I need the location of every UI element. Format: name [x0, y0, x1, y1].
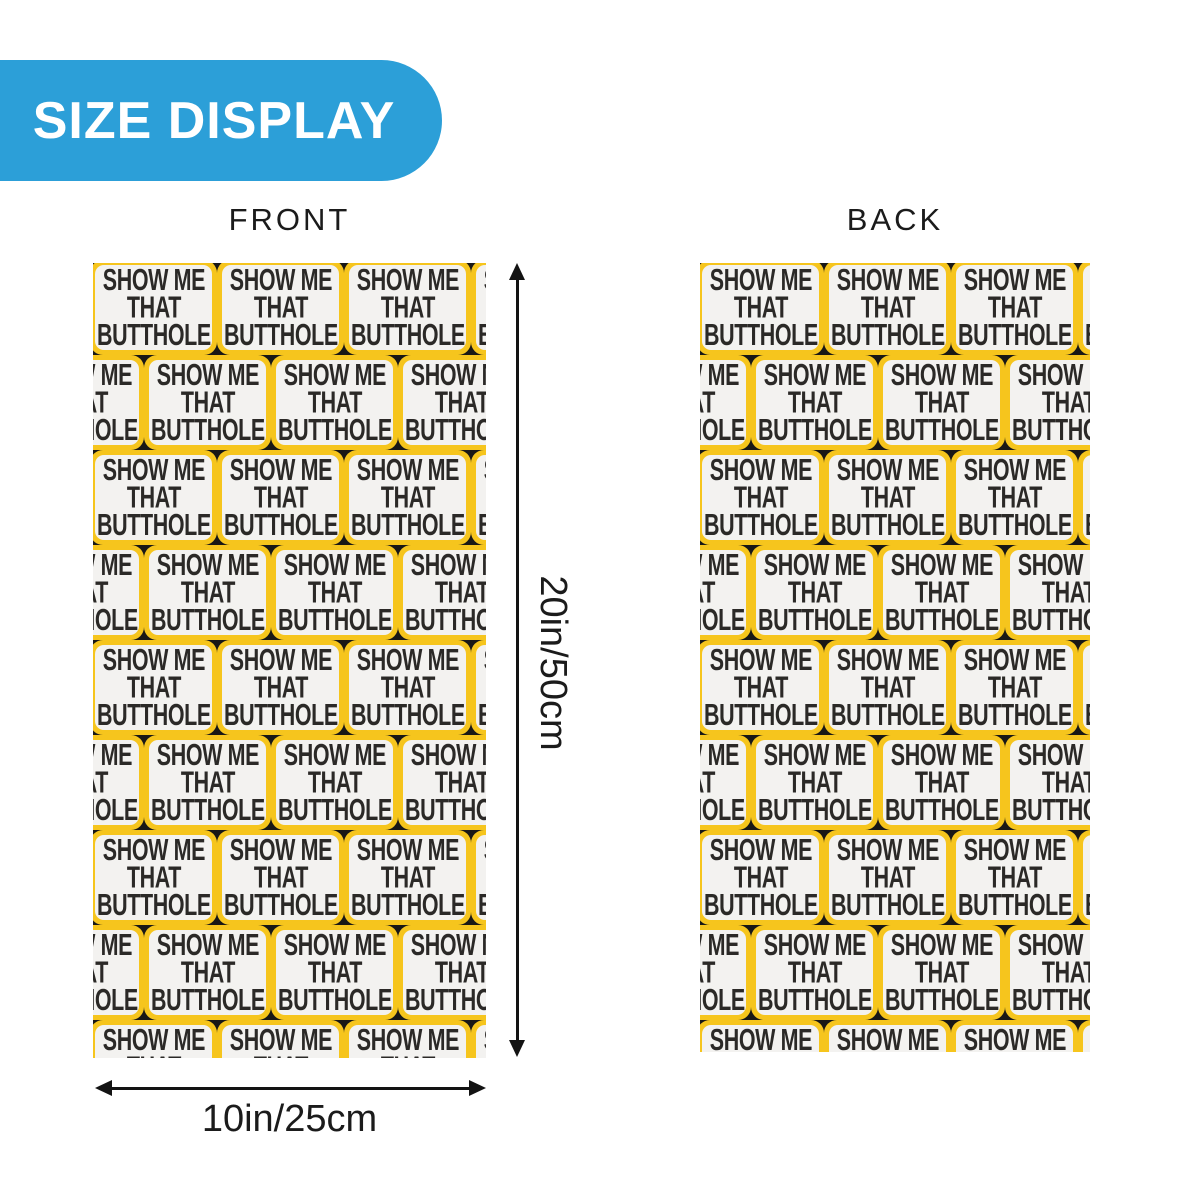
- pattern-tile-face: SHOW METHATBUTTHOLE: [1083, 1025, 1090, 1052]
- tile-text: SHOW METHATBUTTHOLE: [351, 646, 465, 729]
- pattern-tile-face: SHOW METHATBUTTHOLE: [476, 455, 486, 540]
- size-display-page: SIZE DISPLAY FRONT BACK SHOW METHATBUTTH…: [0, 0, 1200, 1200]
- tile-line: BUTTHOLE: [958, 891, 1072, 919]
- tile-line: BUTTHOLE: [351, 891, 465, 919]
- tile-line: THAT: [1012, 579, 1090, 607]
- pattern-tile-face: SHOW METHATBUTTHOLE: [149, 930, 266, 1015]
- pattern-tile: SHOW METHATBUTTHOLE: [878, 925, 1005, 1020]
- tile-line: SHOW ME: [405, 551, 486, 579]
- pattern-tile-face: SHOW METHATBUTTHOLE: [222, 645, 339, 730]
- tile-line: THAT: [758, 389, 872, 417]
- height-arrow: [509, 263, 526, 1057]
- tile-text: SHOW METHATBUTTHOLE: [478, 646, 486, 729]
- tile-text: SHOW METHATBUTTHOLE: [958, 836, 1072, 919]
- tile-line: BUTTHOLE: [97, 891, 211, 919]
- tile-line: THAT: [151, 389, 265, 417]
- pattern-tile-face: SHOW METHATBUTTHOLE: [93, 550, 139, 635]
- pattern-tile-face: SHOW METHATBUTTHOLE: [1083, 265, 1090, 350]
- pattern-tile: SHOW METHATBUTTHOLE: [93, 450, 217, 545]
- tile-text: SHOW METHATBUTTHOLE: [93, 551, 137, 634]
- tile-line: BUTTHOLE: [758, 606, 872, 634]
- tile-line: SHOW ME: [831, 1026, 945, 1052]
- pattern-tile-face: SHOW METHATBUTTHOLE: [756, 550, 873, 635]
- pattern-tile-face: SHOW METHATBUTTHOLE: [829, 1025, 946, 1052]
- tile-line: SHOW ME: [224, 646, 338, 674]
- tile-text: SHOW METHATBUTTHOLE: [1012, 741, 1090, 824]
- tile-line: BUTTHOLE: [93, 416, 137, 444]
- tile-line: BUTTHOLE: [885, 986, 999, 1014]
- tile-line: SHOW ME: [758, 931, 872, 959]
- tile-line: BUTTHOLE: [224, 701, 338, 729]
- tile-text: SHOW METHATBUTTHOLE: [758, 361, 872, 444]
- pattern-tile-face: SHOW METHATBUTTHOLE: [1010, 360, 1090, 445]
- tile-line: THAT: [405, 579, 486, 607]
- pattern-tile: SHOW METHATBUTTHOLE: [271, 545, 398, 640]
- tile-line: THAT: [93, 579, 137, 607]
- tile-line: BUTTHOLE: [704, 701, 818, 729]
- pattern-tile-face: SHOW METHATBUTTHOLE: [222, 455, 339, 540]
- tile-line: SHOW ME: [704, 266, 818, 294]
- tile-text: SHOW METHATBUTTHOLE: [958, 266, 1072, 349]
- pattern-tile-face: SHOW METHATBUTTHOLE: [93, 360, 139, 445]
- tile-line: THAT: [704, 484, 818, 512]
- tile-line: SHOW ME: [278, 931, 392, 959]
- pattern-tile: SHOW METHATBUTTHOLE: [93, 545, 144, 640]
- pattern-tile-face: SHOW METHATBUTTHOLE: [476, 265, 486, 350]
- tile-line: BUTTHOLE: [278, 986, 392, 1014]
- pattern-tile-face: SHOW METHATBUTTHOLE: [829, 835, 946, 920]
- tile-line: SHOW ME: [1085, 266, 1090, 294]
- pattern-tile-face: SHOW METHATBUTTHOLE: [349, 835, 466, 920]
- pattern-tile: SHOW METHATBUTTHOLE: [700, 830, 824, 925]
- tile-text: SHOW METHATBUTTHOLE: [704, 646, 818, 729]
- pattern-tile-face: SHOW METHATBUTTHOLE: [403, 360, 486, 445]
- arrowhead-down-icon: [509, 1040, 525, 1057]
- pattern-tile-face: SHOW METHATBUTTHOLE: [149, 550, 266, 635]
- tile-text: SHOW METHATBUTTHOLE: [831, 1026, 945, 1052]
- tile-text: SHOW METHATBUTTHOLE: [1012, 931, 1090, 1014]
- pattern-tile-face: SHOW METHATBUTTHOLE: [829, 455, 946, 540]
- tile-line: BUTTHOLE: [278, 796, 392, 824]
- tile-line: SHOW ME: [405, 741, 486, 769]
- tile-text: SHOW METHATBUTTHOLE: [1085, 836, 1090, 919]
- pattern-tile-face: SHOW METHATBUTTHOLE: [829, 645, 946, 730]
- tile-line: SHOW ME: [958, 456, 1072, 484]
- tile-line: SHOW ME: [405, 931, 486, 959]
- tile-text: SHOW METHATBUTTHOLE: [97, 1026, 211, 1058]
- tile-line: BUTTHOLE: [1085, 321, 1090, 349]
- pattern-tile: SHOW METHATBUTTHOLE: [93, 925, 144, 1020]
- tile-line: BUTTHOLE: [97, 701, 211, 729]
- tile-line: SHOW ME: [151, 741, 265, 769]
- pattern-tile-face: SHOW METHATBUTTHOLE: [276, 930, 393, 1015]
- pattern-tile: SHOW METHATBUTTHOLE: [93, 735, 144, 830]
- tile-line: SHOW ME: [93, 741, 137, 769]
- tile-line: SHOW ME: [97, 1026, 211, 1054]
- tile-text: SHOW METHATBUTTHOLE: [405, 931, 486, 1014]
- tile-line: BUTTHOLE: [351, 511, 465, 539]
- tile-text: SHOW METHATBUTTHOLE: [351, 836, 465, 919]
- tile-line: THAT: [93, 959, 137, 987]
- pattern-tile-face: SHOW METHATBUTTHOLE: [222, 265, 339, 350]
- tile-line: THAT: [151, 959, 265, 987]
- tile-line: BUTTHOLE: [151, 986, 265, 1014]
- tile-line: SHOW ME: [351, 266, 465, 294]
- pattern-tile-face: SHOW METHATBUTTHOLE: [702, 835, 819, 920]
- tile-line: THAT: [885, 769, 999, 797]
- tile-text: SHOW METHATBUTTHOLE: [704, 1026, 818, 1052]
- pattern-tile: SHOW METHATBUTTHOLE: [93, 355, 144, 450]
- tile-line: SHOW ME: [831, 456, 945, 484]
- tile-text: SHOW METHATBUTTHOLE: [97, 456, 211, 539]
- tile-line: THAT: [1085, 864, 1090, 892]
- pattern-tile: SHOW METHATBUTTHOLE: [1005, 735, 1090, 830]
- tile-text: SHOW METHATBUTTHOLE: [405, 551, 486, 634]
- tile-line: THAT: [831, 294, 945, 322]
- pattern-tile-face: SHOW METHATBUTTHOLE: [1010, 740, 1090, 825]
- pattern-tile: SHOW METHATBUTTHOLE: [93, 640, 217, 735]
- tile-line: SHOW ME: [478, 266, 486, 294]
- pattern-tile: SHOW METHATBUTTHOLE: [144, 925, 271, 1020]
- pattern-tile-face: SHOW METHATBUTTHOLE: [829, 265, 946, 350]
- tile-line: SHOW ME: [1085, 456, 1090, 484]
- tile-line: SHOW ME: [97, 646, 211, 674]
- tile-line: BUTTHOLE: [278, 606, 392, 634]
- tile-line: SHOW ME: [885, 361, 999, 389]
- tile-text: SHOW METHATBUTTHOLE: [93, 741, 137, 824]
- tile-text: SHOW METHATBUTTHOLE: [700, 931, 744, 1014]
- banner-label: SIZE DISPLAY: [33, 91, 410, 151]
- tile-text: SHOW METHATBUTTHOLE: [758, 931, 872, 1014]
- tile-line: BUTTHOLE: [885, 796, 999, 824]
- pattern-tile-face: SHOW METHATBUTTHOLE: [702, 645, 819, 730]
- tile-line: BUTTHOLE: [700, 796, 744, 824]
- pattern-tile-face: SHOW METHATBUTTHOLE: [883, 740, 1000, 825]
- tile-line: SHOW ME: [958, 1026, 1072, 1052]
- tile-line: THAT: [405, 769, 486, 797]
- pattern-tile-face: SHOW METHATBUTTHOLE: [883, 360, 1000, 445]
- pattern-tile: SHOW METHATBUTTHOLE: [824, 830, 951, 925]
- pattern-tile: SHOW METHATBUTTHOLE: [271, 735, 398, 830]
- tile-text: SHOW METHATBUTTHOLE: [97, 836, 211, 919]
- tile-line: BUTTHOLE: [405, 796, 486, 824]
- tile-line: BUTTHOLE: [700, 606, 744, 634]
- tile-line: THAT: [224, 864, 338, 892]
- tile-line: BUTTHOLE: [700, 416, 744, 444]
- pattern-tile: SHOW METHATBUTTHOLE: [144, 545, 271, 640]
- tile-line: THAT: [958, 294, 1072, 322]
- tile-text: SHOW METHATBUTTHOLE: [351, 266, 465, 349]
- tile-text: SHOW METHATBUTTHOLE: [151, 931, 265, 1014]
- pattern-tile: SHOW METHATBUTTHOLE: [700, 925, 751, 1020]
- pattern-tile: SHOW METHATBUTTHOLE: [1005, 545, 1090, 640]
- tile-line: SHOW ME: [700, 361, 744, 389]
- tile-line: SHOW ME: [958, 646, 1072, 674]
- tile-text: SHOW METHATBUTTHOLE: [758, 551, 872, 634]
- tile-line: BUTTHOLE: [93, 606, 137, 634]
- tile-line: SHOW ME: [704, 1026, 818, 1052]
- tile-line: BUTTHOLE: [1085, 701, 1090, 729]
- pattern-tile-face: SHOW METHATBUTTHOLE: [276, 360, 393, 445]
- pattern-tile-face: SHOW METHATBUTTHOLE: [95, 265, 212, 350]
- pattern-tile-face: SHOW METHATBUTTHOLE: [702, 265, 819, 350]
- tile-line: BUTTHOLE: [1012, 986, 1090, 1014]
- tile-text: SHOW METHATBUTTHOLE: [700, 361, 744, 444]
- tile-line: THAT: [97, 674, 211, 702]
- tile-line: SHOW ME: [478, 646, 486, 674]
- tile-text: SHOW METHATBUTTHOLE: [97, 646, 211, 729]
- pattern-tile: SHOW METHATBUTTHOLE: [471, 1020, 486, 1058]
- arrowhead-right-icon: [469, 1080, 486, 1096]
- tile-line: BUTTHOLE: [151, 796, 265, 824]
- tile-line: BUTTHOLE: [405, 416, 486, 444]
- front-panel: SHOW METHATBUTTHOLESHOW METHATBUTTHOLESH…: [93, 263, 486, 1058]
- pattern-tile-face: SHOW METHATBUTTHOLE: [956, 645, 1073, 730]
- tile-line: SHOW ME: [758, 741, 872, 769]
- tile-text: SHOW METHATBUTTHOLE: [478, 266, 486, 349]
- front-label: FRONT: [93, 202, 486, 238]
- width-arrow: [95, 1080, 486, 1097]
- pattern-tile: SHOW METHATBUTTHOLE: [700, 735, 751, 830]
- tile-text: SHOW METHATBUTTHOLE: [278, 741, 392, 824]
- tile-line: THAT: [97, 484, 211, 512]
- pattern-tile-face: SHOW METHATBUTTHOLE: [1083, 645, 1090, 730]
- pattern-tile-face: SHOW METHATBUTTHOLE: [349, 455, 466, 540]
- tile-text: SHOW METHATBUTTHOLE: [1085, 456, 1090, 539]
- tile-text: SHOW METHATBUTTHOLE: [831, 456, 945, 539]
- tile-line: THAT: [700, 769, 744, 797]
- tile-text: SHOW METHATBUTTHOLE: [885, 741, 999, 824]
- pattern-tile-face: SHOW METHATBUTTHOLE: [956, 1025, 1073, 1052]
- tile-line: BUTTHOLE: [958, 321, 1072, 349]
- tile-line: THAT: [151, 769, 265, 797]
- pattern-tile: SHOW METHATBUTTHOLE: [1078, 640, 1090, 735]
- pattern-tile-face: SHOW METHATBUTTHOLE: [1010, 550, 1090, 635]
- tile-text: SHOW METHATBUTTHOLE: [704, 836, 818, 919]
- pattern-tile-face: SHOW METHATBUTTHOLE: [476, 1025, 486, 1058]
- tile-line: THAT: [758, 579, 872, 607]
- tile-line: SHOW ME: [958, 836, 1072, 864]
- pattern-tile-face: SHOW METHATBUTTHOLE: [95, 835, 212, 920]
- tile-text: SHOW METHATBUTTHOLE: [224, 266, 338, 349]
- pattern-tile-face: SHOW METHATBUTTHOLE: [222, 835, 339, 920]
- pattern-tile-face: SHOW METHATBUTTHOLE: [95, 1025, 212, 1058]
- tile-line: SHOW ME: [93, 361, 137, 389]
- tile-line: THAT: [278, 579, 392, 607]
- pattern-tile: SHOW METHATBUTTHOLE: [217, 263, 344, 355]
- tile-text: SHOW METHATBUTTHOLE: [478, 456, 486, 539]
- tile-line: BUTTHOLE: [885, 606, 999, 634]
- tile-line: SHOW ME: [758, 551, 872, 579]
- tile-text: SHOW METHATBUTTHOLE: [224, 646, 338, 729]
- pattern-tile-face: SHOW METHATBUTTHOLE: [349, 645, 466, 730]
- tile-line: BUTTHOLE: [758, 986, 872, 1014]
- tile-text: SHOW METHATBUTTHOLE: [224, 1026, 338, 1058]
- pattern-tile-face: SHOW METHATBUTTHOLE: [403, 930, 486, 1015]
- pattern-tile-face: SHOW METHATBUTTHOLE: [700, 360, 746, 445]
- tile-text: SHOW METHATBUTTHOLE: [700, 741, 744, 824]
- tile-text: SHOW METHATBUTTHOLE: [831, 836, 945, 919]
- pattern-tile-face: SHOW METHATBUTTHOLE: [276, 550, 393, 635]
- pattern-tile-face: SHOW METHATBUTTHOLE: [95, 455, 212, 540]
- tile-line: SHOW ME: [704, 836, 818, 864]
- tile-text: SHOW METHATBUTTHOLE: [151, 551, 265, 634]
- pattern-tile: SHOW METHATBUTTHOLE: [824, 640, 951, 735]
- tile-line: SHOW ME: [224, 266, 338, 294]
- pattern-tile: SHOW METHATBUTTHOLE: [878, 545, 1005, 640]
- pattern-tile-face: SHOW METHATBUTTHOLE: [403, 740, 486, 825]
- tile-line: BUTTHOLE: [958, 511, 1072, 539]
- tile-line: SHOW ME: [224, 836, 338, 864]
- pattern-tile: SHOW METHATBUTTHOLE: [751, 925, 878, 1020]
- pattern-tile: SHOW METHATBUTTHOLE: [471, 640, 486, 735]
- pattern-tile: SHOW METHATBUTTHOLE: [700, 450, 824, 545]
- tile-line: THAT: [278, 769, 392, 797]
- tile-text: SHOW METHATBUTTHOLE: [1085, 266, 1090, 349]
- pattern-tile: SHOW METHATBUTTHOLE: [1078, 450, 1090, 545]
- tile-line: SHOW ME: [704, 646, 818, 674]
- tile-line: THAT: [831, 484, 945, 512]
- pattern-tile: SHOW METHATBUTTHOLE: [951, 263, 1078, 355]
- tile-line: SHOW ME: [405, 361, 486, 389]
- pattern-tile-face: SHOW METHATBUTTHOLE: [756, 740, 873, 825]
- tile-line: THAT: [351, 864, 465, 892]
- tile-line: THAT: [478, 484, 486, 512]
- tile-line: THAT: [885, 389, 999, 417]
- tile-line: SHOW ME: [1085, 1026, 1090, 1052]
- pattern-tile-face: SHOW METHATBUTTHOLE: [403, 550, 486, 635]
- pattern-tile: SHOW METHATBUTTHOLE: [700, 1020, 824, 1052]
- pattern-tile-face: SHOW METHATBUTTHOLE: [349, 1025, 466, 1058]
- tile-line: SHOW ME: [885, 741, 999, 769]
- pattern-tile: SHOW METHATBUTTHOLE: [217, 450, 344, 545]
- tile-text: SHOW METHATBUTTHOLE: [278, 551, 392, 634]
- tile-text: SHOW METHATBUTTHOLE: [351, 1026, 465, 1058]
- pattern-tile: SHOW METHATBUTTHOLE: [344, 640, 471, 735]
- tile-line: SHOW ME: [831, 836, 945, 864]
- pattern-tile: SHOW METHATBUTTHOLE: [824, 450, 951, 545]
- tile-text: SHOW METHATBUTTHOLE: [478, 836, 486, 919]
- tile-line: THAT: [351, 674, 465, 702]
- tile-line: THAT: [351, 294, 465, 322]
- size-display-banner: SIZE DISPLAY: [0, 60, 442, 181]
- pattern-tile: SHOW METHATBUTTHOLE: [144, 355, 271, 450]
- tile-line: BUTTHOLE: [478, 891, 486, 919]
- pattern-tile-face: SHOW METHATBUTTHOLE: [883, 930, 1000, 1015]
- pattern-tile: SHOW METHATBUTTHOLE: [398, 735, 486, 830]
- pattern-tile: SHOW METHATBUTTHOLE: [1005, 925, 1090, 1020]
- tile-text: SHOW METHATBUTTHOLE: [885, 551, 999, 634]
- tile-line: BUTTHOLE: [831, 891, 945, 919]
- tile-text: SHOW METHATBUTTHOLE: [224, 836, 338, 919]
- tile-line: SHOW ME: [885, 551, 999, 579]
- tile-line: BUTTHOLE: [224, 321, 338, 349]
- tile-text: SHOW METHATBUTTHOLE: [831, 266, 945, 349]
- tile-text: SHOW METHATBUTTHOLE: [1012, 361, 1090, 444]
- tile-line: THAT: [700, 579, 744, 607]
- tile-line: THAT: [405, 389, 486, 417]
- tile-line: SHOW ME: [151, 931, 265, 959]
- tile-text: SHOW METHATBUTTHOLE: [958, 456, 1072, 539]
- tile-line: SHOW ME: [278, 741, 392, 769]
- tile-line: THAT: [1085, 484, 1090, 512]
- tile-line: SHOW ME: [1085, 836, 1090, 864]
- tile-line: BUTTHOLE: [758, 796, 872, 824]
- tile-line: SHOW ME: [478, 456, 486, 484]
- tile-line: SHOW ME: [700, 931, 744, 959]
- tile-text: SHOW METHATBUTTHOLE: [885, 361, 999, 444]
- tile-line: THAT: [278, 389, 392, 417]
- tile-line: BUTTHOLE: [478, 701, 486, 729]
- tile-text: SHOW METHATBUTTHOLE: [224, 456, 338, 539]
- pattern-tile: SHOW METHATBUTTHOLE: [951, 1020, 1078, 1052]
- tile-line: BUTTHOLE: [224, 891, 338, 919]
- tile-line: THAT: [958, 484, 1072, 512]
- tile-line: THAT: [1085, 674, 1090, 702]
- tile-line: SHOW ME: [1085, 646, 1090, 674]
- tile-line: SHOW ME: [97, 266, 211, 294]
- tile-line: THAT: [831, 674, 945, 702]
- pattern-tile: SHOW METHATBUTTHOLE: [824, 263, 951, 355]
- tile-text: SHOW METHATBUTTHOLE: [885, 931, 999, 1014]
- tile-line: SHOW ME: [151, 361, 265, 389]
- tile-line: THAT: [704, 864, 818, 892]
- tile-line: THAT: [700, 389, 744, 417]
- pattern-tile: SHOW METHATBUTTHOLE: [1078, 263, 1090, 355]
- tile-line: SHOW ME: [97, 456, 211, 484]
- pattern-tile-face: SHOW METHATBUTTHOLE: [476, 835, 486, 920]
- tile-line: THAT: [704, 294, 818, 322]
- width-label: 10in/25cm: [93, 1098, 486, 1141]
- tile-text: SHOW METHATBUTTHOLE: [97, 266, 211, 349]
- tile-line: SHOW ME: [700, 551, 744, 579]
- tile-line: BUTTHOLE: [1085, 511, 1090, 539]
- pattern-tile: SHOW METHATBUTTHOLE: [398, 355, 486, 450]
- pattern-tile-face: SHOW METHATBUTTHOLE: [756, 360, 873, 445]
- pattern-tile: SHOW METHATBUTTHOLE: [93, 1020, 217, 1058]
- tile-line: THAT: [93, 389, 137, 417]
- pattern-tile-face: SHOW METHATBUTTHOLE: [1010, 930, 1090, 1015]
- tile-line: THAT: [700, 959, 744, 987]
- tile-text: SHOW METHATBUTTHOLE: [1012, 551, 1090, 634]
- pattern-tile: SHOW METHATBUTTHOLE: [398, 545, 486, 640]
- tile-line: BUTTHOLE: [704, 891, 818, 919]
- tile-line: SHOW ME: [93, 551, 137, 579]
- tile-line: SHOW ME: [478, 1026, 486, 1054]
- pattern-tile: SHOW METHATBUTTHOLE: [471, 263, 486, 355]
- tile-line: SHOW ME: [97, 836, 211, 864]
- pattern-tile: SHOW METHATBUTTHOLE: [824, 1020, 951, 1052]
- tile-line: BUTTHOLE: [224, 511, 338, 539]
- tile-line: SHOW ME: [278, 361, 392, 389]
- tile-line: THAT: [1012, 389, 1090, 417]
- tile-line: SHOW ME: [885, 931, 999, 959]
- pattern-tile-face: SHOW METHATBUTTHOLE: [956, 455, 1073, 540]
- pattern-tile-face: SHOW METHATBUTTHOLE: [93, 930, 139, 1015]
- tile-line: THAT: [151, 579, 265, 607]
- tile-line: SHOW ME: [831, 266, 945, 294]
- tile-line: BUTTHOLE: [700, 986, 744, 1014]
- tile-line: BUTTHOLE: [97, 511, 211, 539]
- tile-line: SHOW ME: [1012, 551, 1090, 579]
- tile-line: BUTTHOLE: [958, 701, 1072, 729]
- pattern-tile-face: SHOW METHATBUTTHOLE: [702, 1025, 819, 1052]
- pattern-tile: SHOW METHATBUTTHOLE: [144, 735, 271, 830]
- tile-line: SHOW ME: [93, 931, 137, 959]
- tile-text: SHOW METHATBUTTHOLE: [151, 741, 265, 824]
- tile-line: SHOW ME: [1012, 741, 1090, 769]
- pattern-tile: SHOW METHATBUTTHOLE: [344, 830, 471, 925]
